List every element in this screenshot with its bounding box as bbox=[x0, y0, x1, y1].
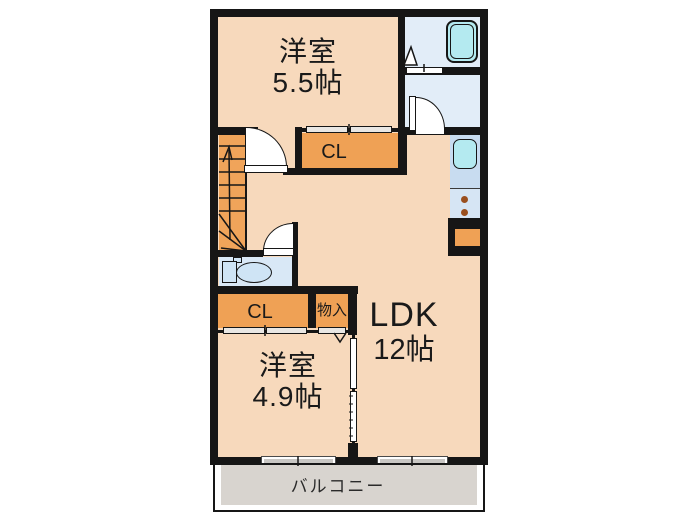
storage-label: 物入 bbox=[317, 303, 347, 320]
ldk-label: LDK 12帖 bbox=[369, 296, 438, 367]
room-size: 5.5帖 bbox=[273, 67, 344, 98]
closet-top-label: CL bbox=[321, 141, 347, 163]
room-name: 洋室 bbox=[273, 36, 344, 67]
room-size: 4.9帖 bbox=[253, 381, 324, 412]
fold-door-icon bbox=[404, 47, 417, 65]
room-name: 洋室 bbox=[253, 350, 324, 381]
room-5-5-label: 洋室 5.5帖 bbox=[273, 36, 344, 99]
fold-door-icon bbox=[334, 333, 346, 342]
floor-plan: 洋室 5.5帖 CL LDK 12帖 CL 物入 洋室 4.9帖 バルコニー bbox=[0, 0, 700, 525]
linework-overlay bbox=[0, 0, 700, 525]
room-name: LDK bbox=[369, 296, 438, 334]
room-size: 12帖 bbox=[369, 334, 438, 366]
balcony-label: バルコニー bbox=[291, 477, 386, 496]
closet-bottom-label: CL bbox=[247, 301, 273, 323]
room-4-9-label: 洋室 4.9帖 bbox=[253, 350, 324, 413]
